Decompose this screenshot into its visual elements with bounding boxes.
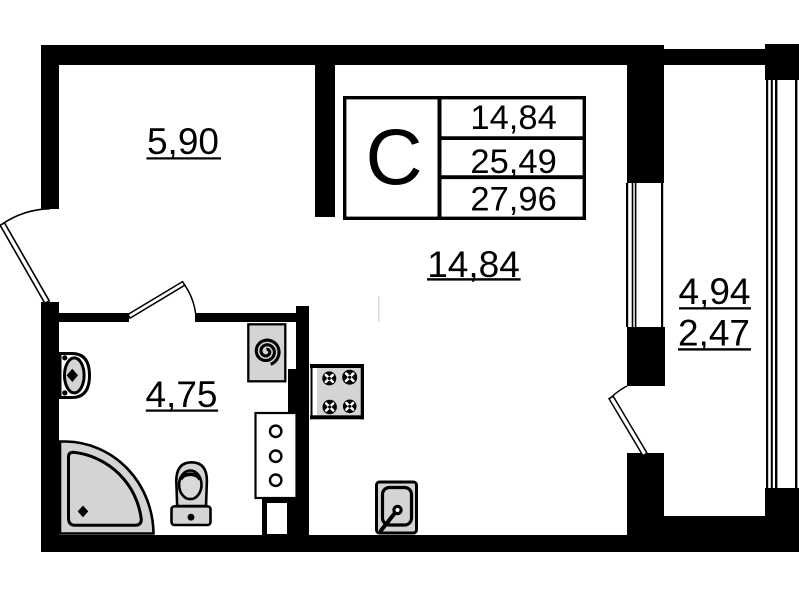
svg-text:25,49: 25,49 [470,143,556,181]
svg-text:4,94: 4,94 [678,271,750,312]
svg-text:2,47: 2,47 [678,313,750,354]
svg-text:С: С [365,112,422,201]
svg-text:14,84: 14,84 [470,99,556,137]
svg-text:27,96: 27,96 [470,181,556,219]
svg-text:5,90: 5,90 [147,121,219,162]
svg-text:4,75: 4,75 [145,374,217,415]
